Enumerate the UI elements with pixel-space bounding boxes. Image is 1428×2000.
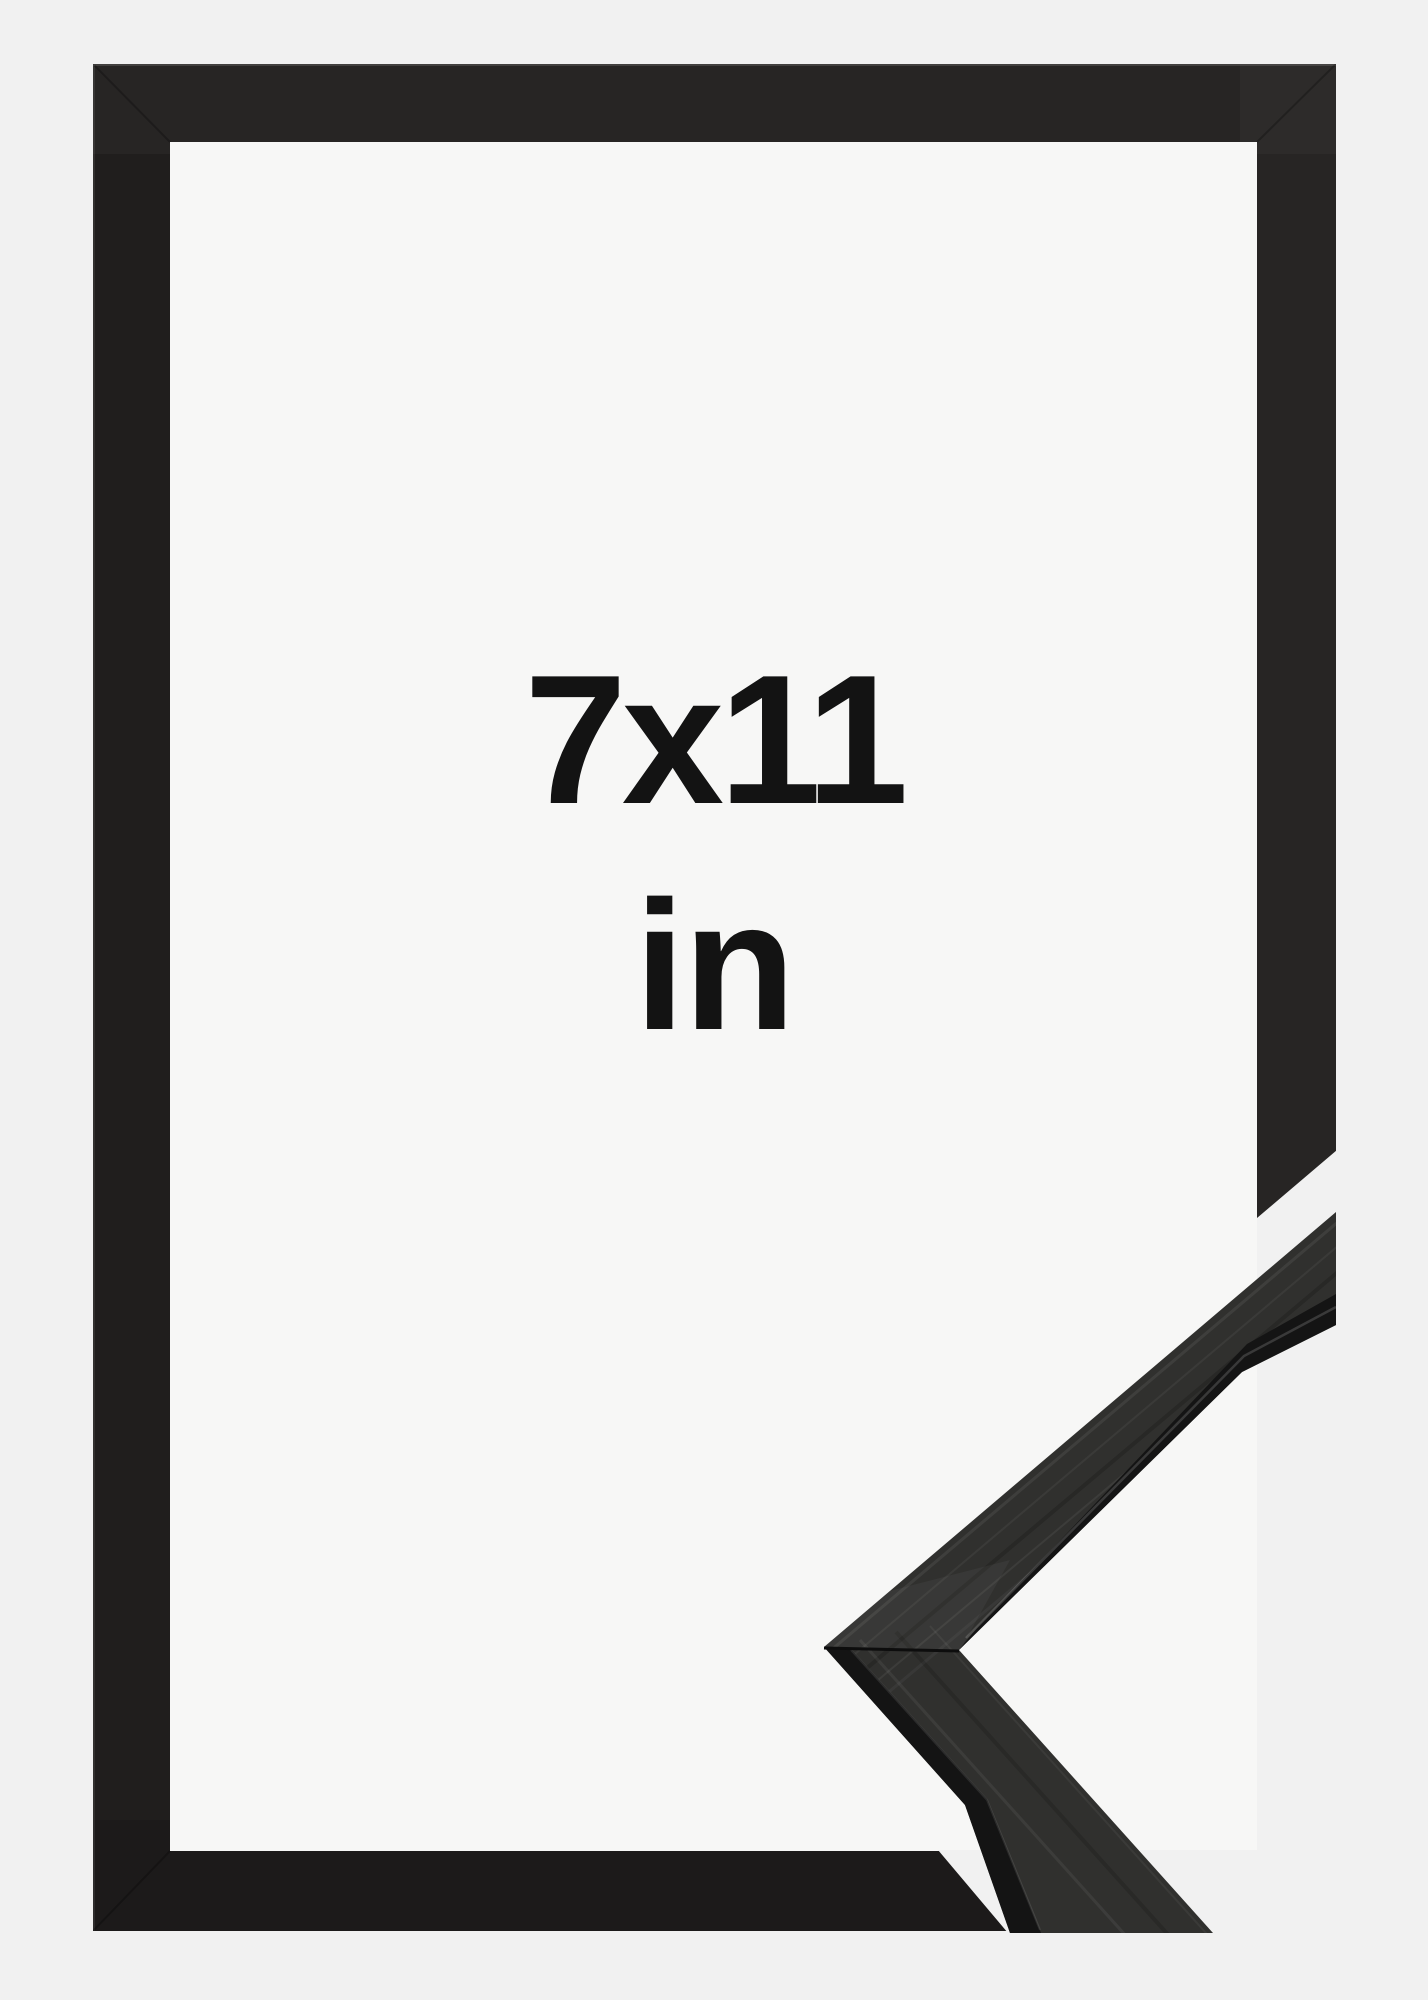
- size-label: 7x11: [170, 626, 1258, 852]
- size-label-block: 7x11 in: [170, 626, 1258, 1079]
- product-photo: 7x11 in: [0, 0, 1428, 2000]
- unit-label: in: [170, 852, 1258, 1078]
